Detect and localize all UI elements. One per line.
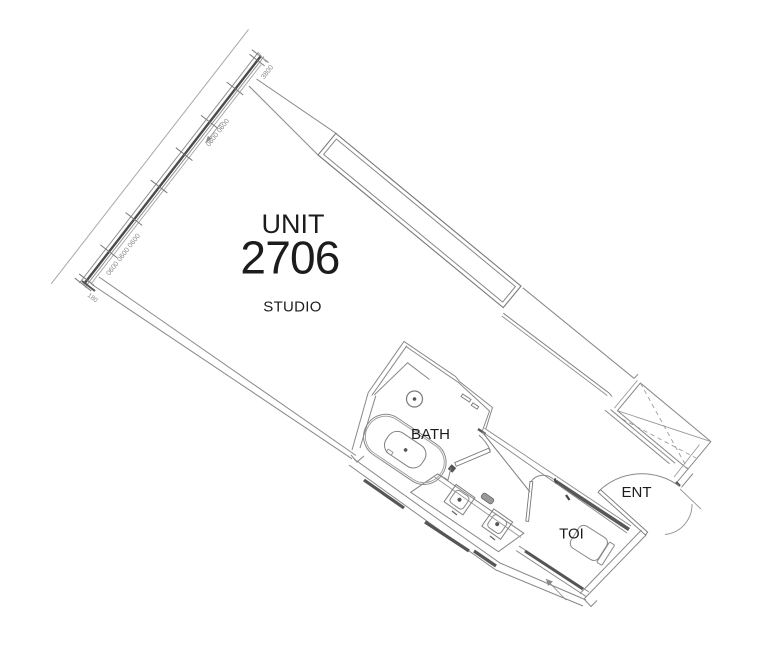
- svg-text:ENT: ENT: [622, 484, 652, 501]
- svg-text:BATH: BATH: [411, 426, 450, 443]
- svg-text:STUDIO: STUDIO: [263, 298, 321, 315]
- svg-text:TOI: TOI: [559, 526, 584, 543]
- svg-text:2706: 2706: [240, 232, 339, 284]
